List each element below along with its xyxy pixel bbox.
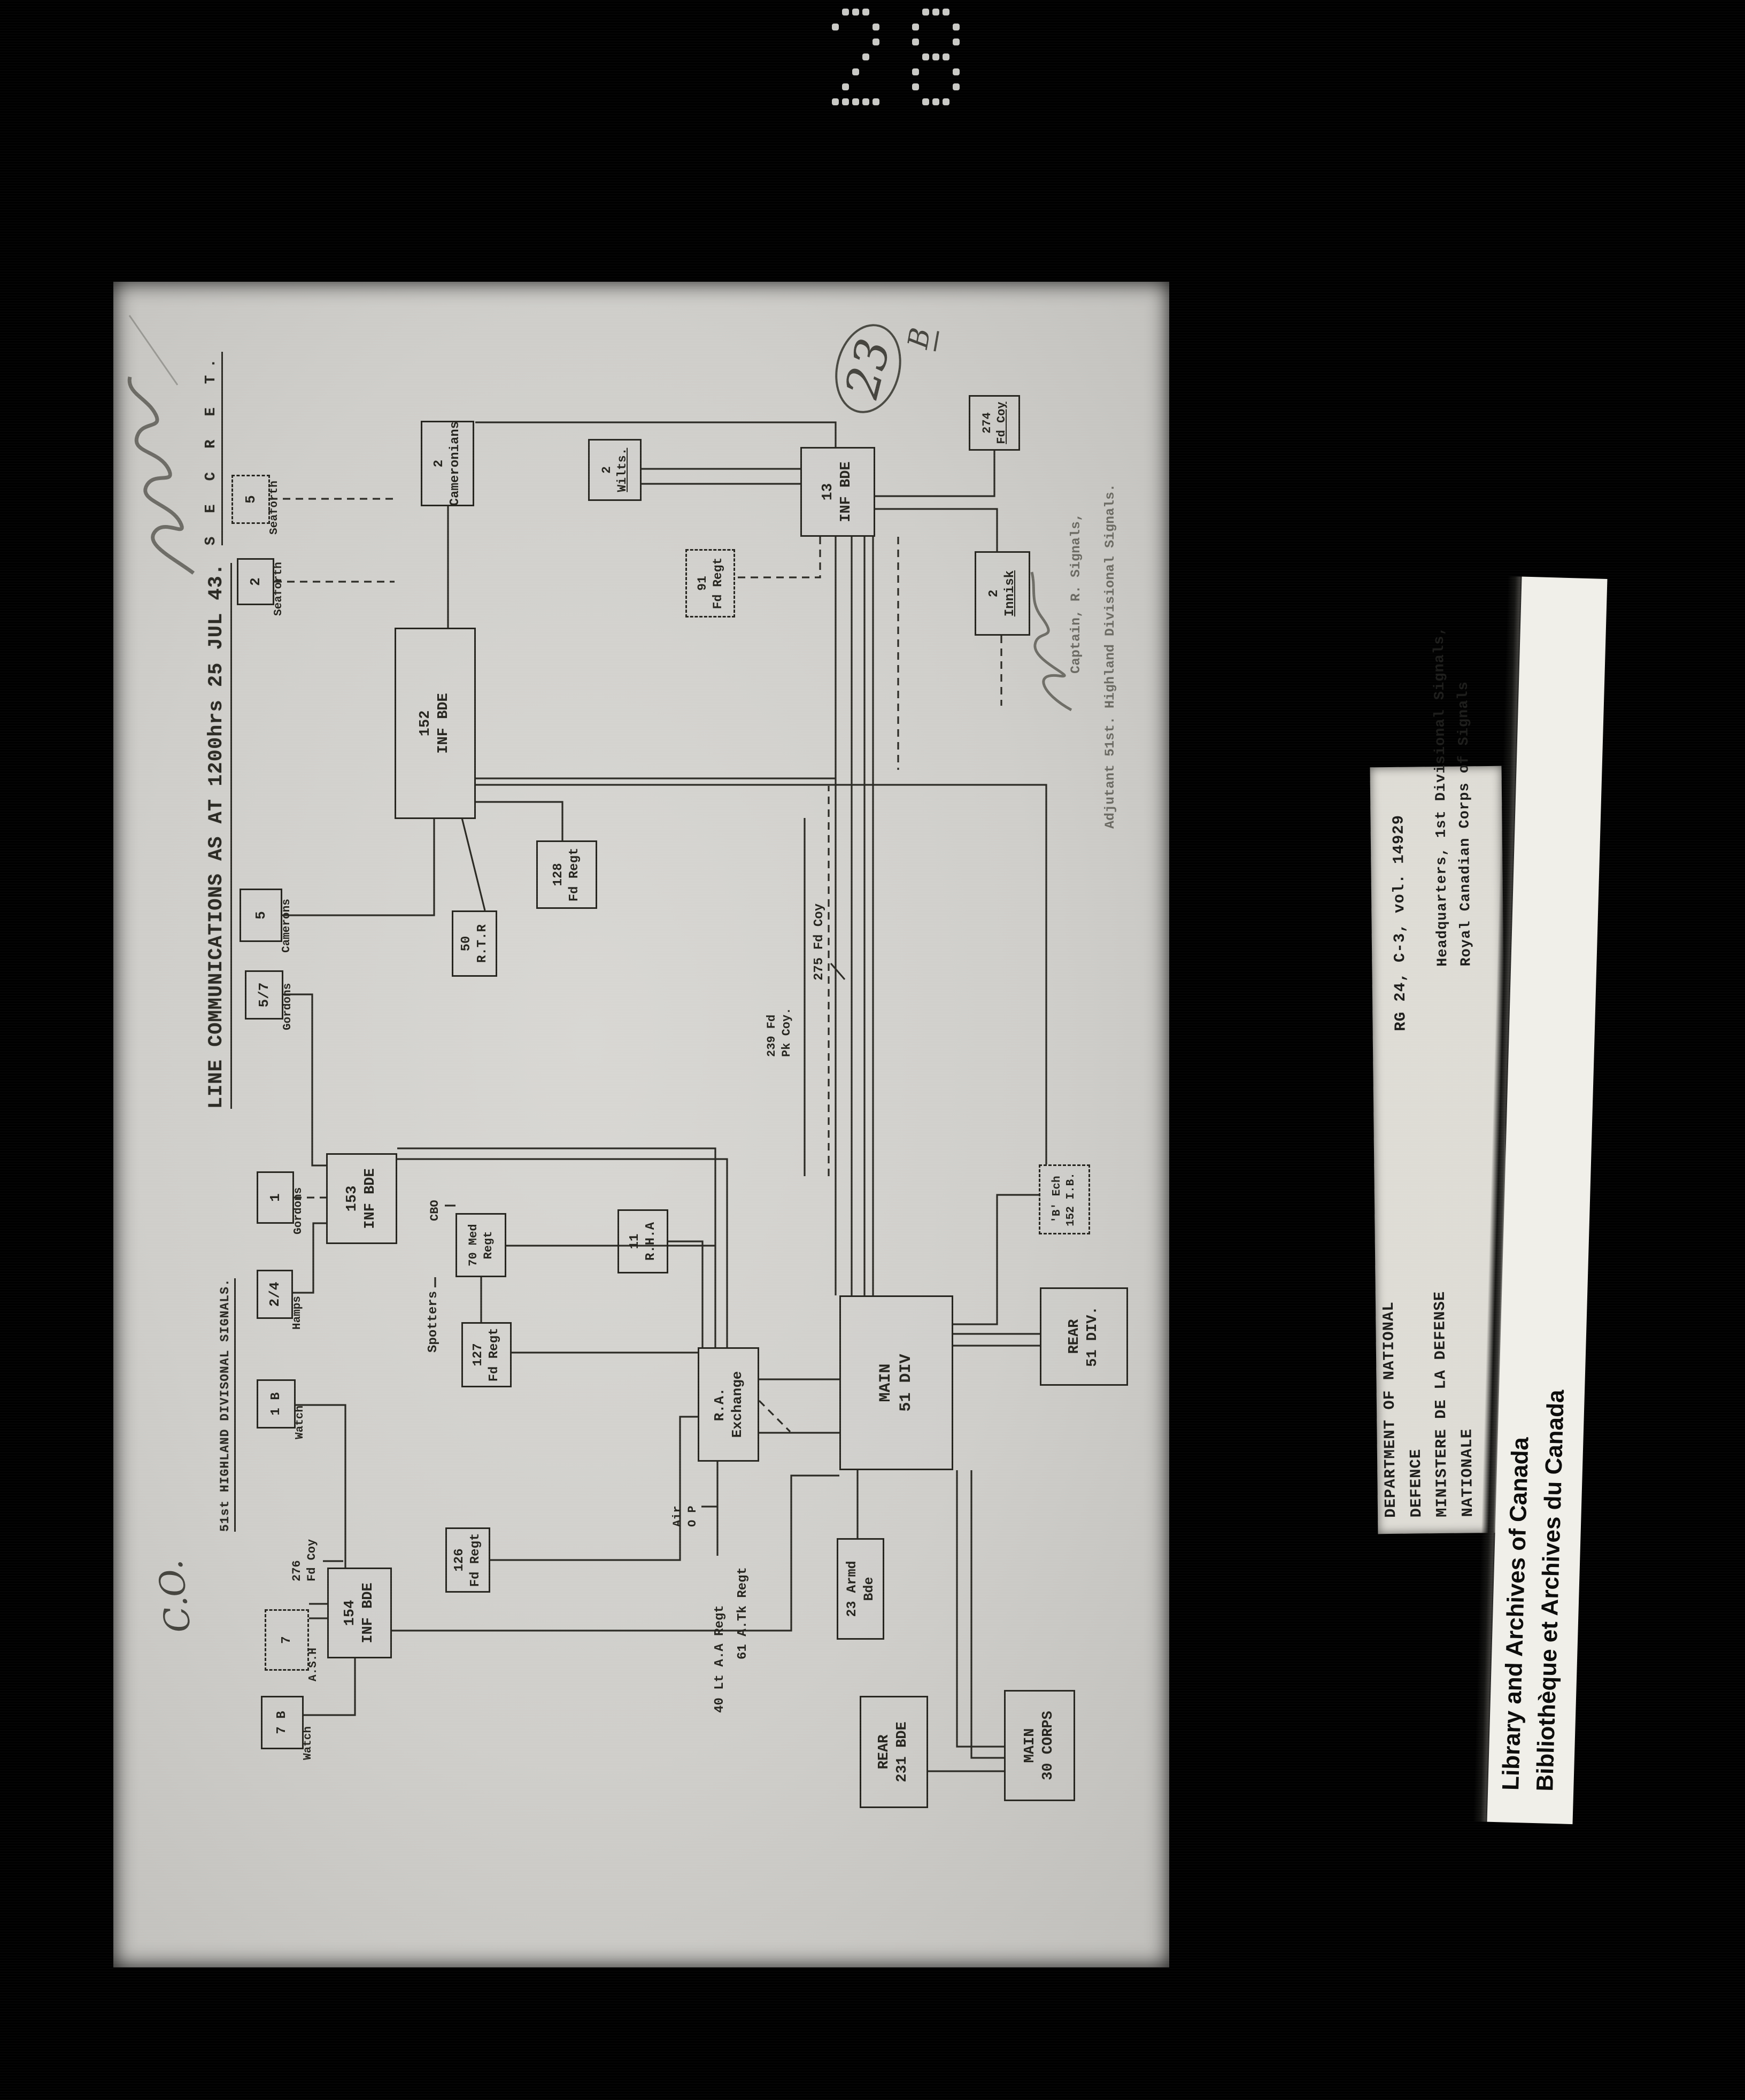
node-text: 51 DIV — [897, 1354, 917, 1411]
node-text: 5 — [252, 911, 270, 920]
diagram-node-152: 152INF BDE — [395, 628, 476, 819]
node-text: MAIN — [876, 1364, 897, 1402]
node-text: Bde — [861, 1577, 877, 1601]
diagram-label-airop: Air O P — [670, 1505, 700, 1527]
diagram-node-2cam: 2Cameronians — [421, 421, 474, 506]
node-sublabel-24ham: Hamps — [291, 1296, 304, 1330]
diagram-label-cbo: CBO — [428, 1200, 443, 1221]
caption-dept-line3: MINISTERE DE LA DEFENSE — [1431, 1291, 1451, 1518]
diagram-label-spot: Spotters — [426, 1291, 442, 1353]
counter-dot — [873, 24, 879, 30]
node-text: 154 — [342, 1600, 360, 1626]
diagram-node-7bw: 7 B — [261, 1696, 304, 1749]
diagram-label-61: 61 A.Tk Regt — [735, 1567, 751, 1659]
node-text: Fd Regt — [487, 1328, 503, 1382]
node-text: Exchange — [729, 1371, 746, 1438]
node-text: Innisk — [1002, 570, 1018, 616]
node-text: 7 B — [274, 1711, 290, 1734]
node-text: 91 — [695, 576, 711, 591]
connection-line — [475, 422, 836, 447]
connection-line — [875, 451, 994, 496]
diagram-node-bech: 'B' Ech152 I.B. — [1039, 1164, 1090, 1234]
diagram-node-57gor: 5/7 — [245, 970, 283, 1020]
connection-line — [462, 818, 485, 910]
node-text: 'B' Ech — [1051, 1176, 1064, 1223]
counter-dot — [953, 83, 960, 90]
connection-line — [397, 1159, 727, 1347]
counter-dot — [943, 98, 949, 105]
counter-dot — [912, 68, 919, 75]
diagram-node-70med: 70 MedRegt — [455, 1213, 506, 1277]
connection-line — [953, 1195, 1039, 1324]
counter-dot — [862, 53, 869, 60]
counter-dot — [832, 98, 839, 105]
diagram-node-rear51: REAR51 DIV. — [1040, 1287, 1128, 1386]
node-text: Wilts. — [615, 448, 630, 492]
caption-hq-line1: Headquarters, 1st Divisional Signals, — [1432, 626, 1451, 967]
node-sublabel-5cam: Camerons — [280, 899, 294, 953]
node-sublabel-2sea: Seaforth — [272, 562, 285, 616]
node-text: Fd Regt — [468, 1533, 484, 1587]
diagram-node-24ham: 2/4 — [257, 1270, 293, 1319]
node-text: R.T.R — [475, 924, 491, 963]
node-text: 51 DIV. — [1084, 1306, 1102, 1366]
diagram-page: 51st HIGHLAND DIVISONAL SIGNALS. LINE CO… — [113, 282, 1169, 1967]
diagram-node-126: 126Fd Regt — [445, 1527, 490, 1593]
node-text: 1 — [267, 1193, 284, 1202]
connection-line — [971, 1470, 1004, 1758]
node-sublabel-1bw: Watch — [294, 1406, 307, 1439]
node-text: 2/4 — [266, 1282, 284, 1307]
counter-dot — [852, 98, 859, 105]
node-text: R.A. — [711, 1388, 729, 1421]
counter-dot — [943, 53, 949, 60]
diagram-node-23armd: 23 ArmdBde — [837, 1538, 884, 1640]
diagram-node-2sea: 2 — [237, 558, 274, 605]
diagram-node-1gor: 1 — [257, 1171, 294, 1224]
counter-dot — [832, 24, 839, 30]
node-text: Regt — [481, 1231, 496, 1260]
diagram-node-13: 13INF BDE — [800, 447, 875, 537]
node-text: 152 I.B. — [1064, 1172, 1078, 1226]
node-sublabel-7ash: A.S.H — [307, 1648, 320, 1681]
counter-dot — [922, 53, 929, 60]
node-text: REAR — [876, 1735, 894, 1770]
node-text: 231 BDE — [894, 1721, 912, 1782]
connection-line — [875, 509, 997, 551]
node-text: 152 — [417, 711, 435, 737]
counter-dot — [932, 98, 939, 105]
counter-dot — [842, 83, 849, 90]
node-text: 127 — [470, 1343, 487, 1366]
counter-dot — [922, 98, 929, 105]
diagram-node-154: 154INF BDE — [327, 1568, 392, 1658]
diagram-label-276: 276 Fd Coy — [290, 1539, 319, 1581]
caption-dept-line2: DEFENCE — [1407, 1448, 1425, 1517]
counter-dot — [922, 9, 929, 16]
diagram-label-40: 40 Lt A.A Regt — [712, 1605, 728, 1713]
diagram-label-239: 239 Fd Pk Coy. — [765, 1008, 794, 1057]
node-text: 153 — [344, 1186, 362, 1212]
lac-title-en: Library and Archives of Canada — [1497, 1437, 1534, 1790]
lac-strip-wrap: Library and Archives of Canada Bibliothè… — [1473, 576, 1610, 1824]
connection-line — [490, 1417, 698, 1560]
node-text: 11 — [627, 1234, 643, 1249]
counter-dot — [912, 83, 919, 90]
diagram-node-274: 274Fd Coy — [969, 395, 1020, 451]
node-text: 2 — [247, 577, 265, 586]
counter-dot — [953, 38, 960, 45]
node-text: INF BDE — [360, 1582, 378, 1643]
diagram-node-1bw: 1 B — [257, 1379, 296, 1429]
node-sublabel-7bw: Watch — [302, 1726, 315, 1760]
diagram-node-153: 153INF BDE — [326, 1153, 397, 1244]
node-text: 2 — [986, 590, 1002, 597]
node-text: INF BDE — [362, 1168, 380, 1229]
diagram-node-main51: MAIN51 DIV — [839, 1295, 953, 1470]
connection-line — [668, 1241, 702, 1347]
counter-dot — [862, 9, 869, 16]
counter-dot — [873, 38, 879, 45]
diagram-node-2inn: 2Innisk — [975, 551, 1030, 636]
node-text: Fd Regt — [711, 558, 726, 609]
diagram-node-2wil: 2Wilts. — [588, 439, 642, 501]
counter-dot — [852, 68, 859, 75]
node-sublabel-5sea: Seaforth — [268, 481, 281, 535]
diagram-node-50rtr: 50R.T.R — [452, 910, 497, 977]
counter-dot — [852, 9, 859, 16]
microfilm-frame: 51st HIGHLAND DIVISONAL SIGNALS. LINE CO… — [0, 0, 1745, 2100]
diagram-node-main30: MAIN30 CORPS — [1004, 1690, 1075, 1801]
node-text: 30 CORPS — [1040, 1711, 1058, 1780]
node-text: 50 — [459, 936, 475, 952]
counter-dot — [912, 24, 919, 30]
diagram-node-127: 127Fd Regt — [461, 1322, 512, 1387]
diagram-node-128: 128Fd Regt — [536, 840, 597, 909]
counter-dot — [842, 98, 849, 105]
counter-dot — [912, 38, 919, 45]
connection-line — [957, 1470, 1004, 1747]
node-text: 126 — [452, 1548, 468, 1571]
node-text: REAR — [1066, 1319, 1084, 1354]
node-text: 70 Med — [466, 1224, 481, 1266]
connection-line — [476, 802, 562, 840]
diagram-node-7ash: 7 — [265, 1609, 309, 1671]
counter-dot — [943, 9, 949, 16]
counter-dot — [873, 98, 879, 105]
node-text: Fd Coy — [994, 402, 1009, 444]
node-text: INF BDE — [435, 693, 453, 753]
connection-line — [759, 1401, 790, 1432]
diagram-node-11rha: 11R.H.A — [617, 1209, 668, 1273]
node-text: MAIN — [1022, 1728, 1040, 1763]
node-text: 13 — [820, 483, 838, 500]
caption-dept-line4: NATIONALE — [1458, 1429, 1477, 1517]
node-text: INF BDE — [838, 461, 856, 522]
counter-dot — [932, 53, 939, 60]
counter-dot — [953, 24, 960, 30]
node-text: Cameronians — [447, 421, 464, 506]
node-text: 5/7 — [256, 983, 273, 1008]
node-text: 23 Armd — [844, 1561, 860, 1617]
caption-dept-line1: DEPARTMENT OF NATIONAL — [1380, 1301, 1400, 1518]
node-text: 2 — [431, 460, 447, 467]
diagram-label-275: 275 Fd Coy — [812, 904, 828, 980]
diagram-node-91fd: 91Fd Regt — [685, 549, 735, 617]
node-text: 128 — [551, 863, 567, 886]
node-text: 1 B — [268, 1392, 284, 1415]
counter-dot — [953, 68, 960, 75]
node-text: 5 — [242, 495, 260, 504]
node-sublabel-57gor: Gordons — [281, 983, 295, 1030]
scanned-document: 51st HIGHLAND DIVISONAL SIGNALS. LINE CO… — [113, 282, 1169, 1967]
caption-reference: RG 24, C-3, vol. 14929 — [1389, 815, 1409, 1031]
counter-dot — [932, 9, 939, 16]
diagram-node-5cam: 5 — [240, 889, 282, 942]
counter-dot — [862, 98, 869, 105]
node-sublabel-1gor: Gordons — [292, 1187, 305, 1234]
lac-title-fr: Bibliothèque et Archives du Canada — [1532, 1389, 1570, 1792]
counter-dot — [842, 9, 849, 16]
diagram-node-rear231: REAR231 BDE — [860, 1696, 928, 1808]
node-text: 2 — [599, 466, 615, 474]
node-text: R.H.A — [643, 1222, 659, 1261]
node-text: 7 — [279, 1636, 295, 1643]
diagram-node-raex: R.A.Exchange — [698, 1347, 759, 1462]
connection-line — [736, 537, 820, 577]
diagram-node-5sea: 5 — [231, 475, 270, 524]
node-text: Fd Regt — [567, 848, 583, 902]
caption-hq-line2: Royal Canadian Corps of Signals — [1456, 681, 1475, 967]
connection-line — [831, 963, 845, 979]
connection-line — [282, 819, 434, 915]
node-text: 274 — [980, 412, 995, 434]
